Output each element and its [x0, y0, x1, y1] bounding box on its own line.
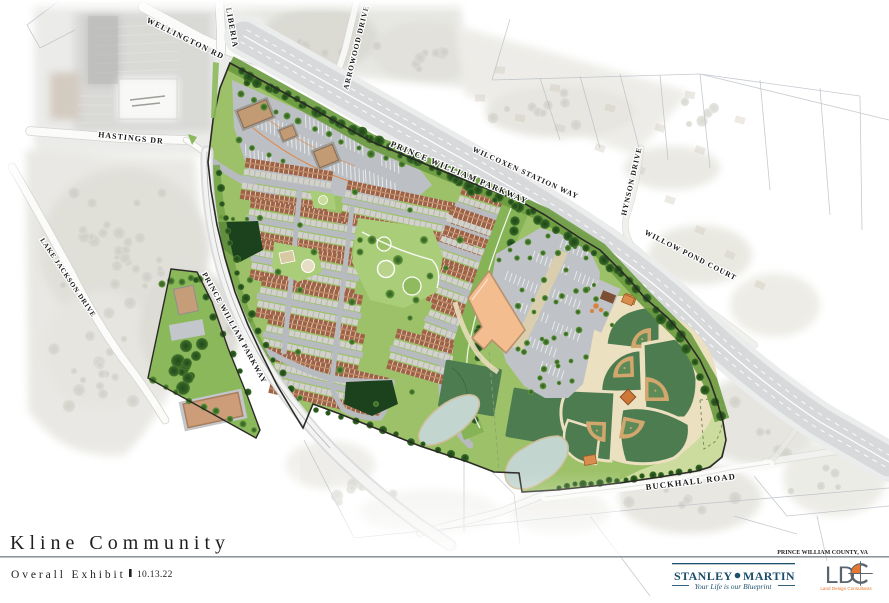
svg-text:LD: LD [825, 562, 855, 589]
svg-text:Your Life is our Blueprint: Your Life is our Blueprint [695, 582, 773, 591]
svg-text:MARTIN: MARTIN [743, 569, 795, 583]
svg-text:Land Design Consultants: Land Design Consultants [820, 586, 872, 591]
svg-text:Kline Community: Kline Community [10, 532, 230, 554]
svg-text:10.13.22: 10.13.22 [137, 570, 173, 580]
svg-text:PRINCE WILLIAM COUNTY, VA: PRINCE WILLIAM COUNTY, VA [777, 550, 868, 556]
svg-text:STANLEY: STANLEY [674, 569, 733, 583]
svg-text:Overall Exhibit: Overall Exhibit [11, 569, 126, 581]
